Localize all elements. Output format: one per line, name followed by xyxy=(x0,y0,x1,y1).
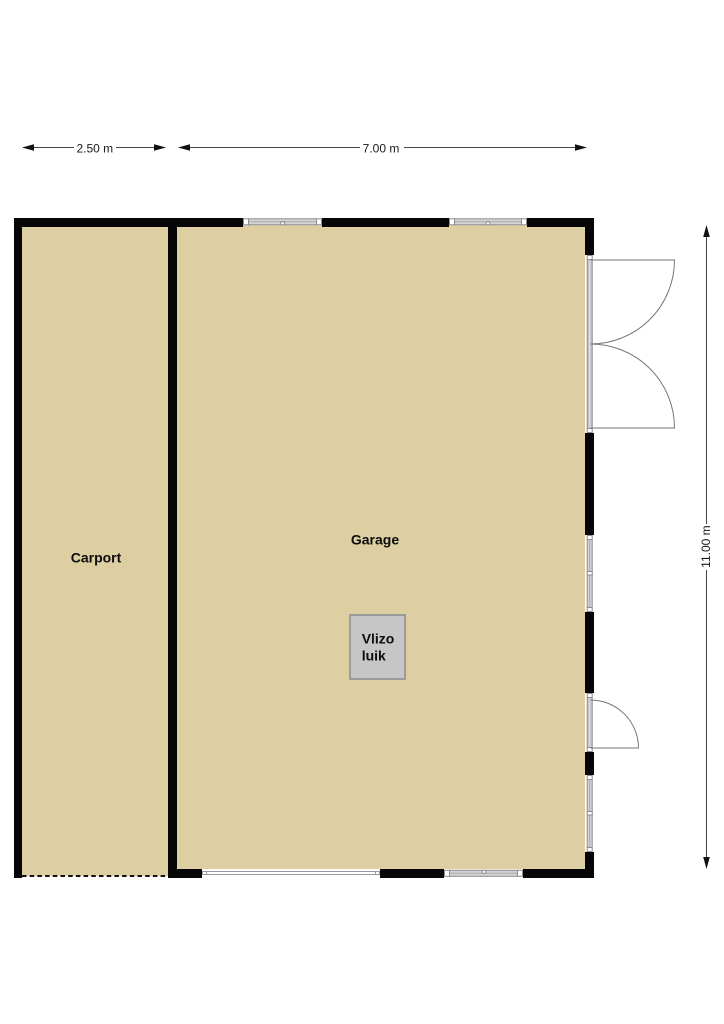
svg-text:11.00 m: 11.00 m xyxy=(699,525,713,567)
svg-text:Vlizo: Vlizo xyxy=(362,631,395,647)
svg-text:Garage: Garage xyxy=(351,532,399,548)
svg-text:luik: luik xyxy=(362,647,386,663)
svg-text:Carport: Carport xyxy=(71,549,122,565)
svg-text:7.00 m: 7.00 m xyxy=(363,142,400,156)
svg-text:2.50 m: 2.50 m xyxy=(76,142,113,156)
